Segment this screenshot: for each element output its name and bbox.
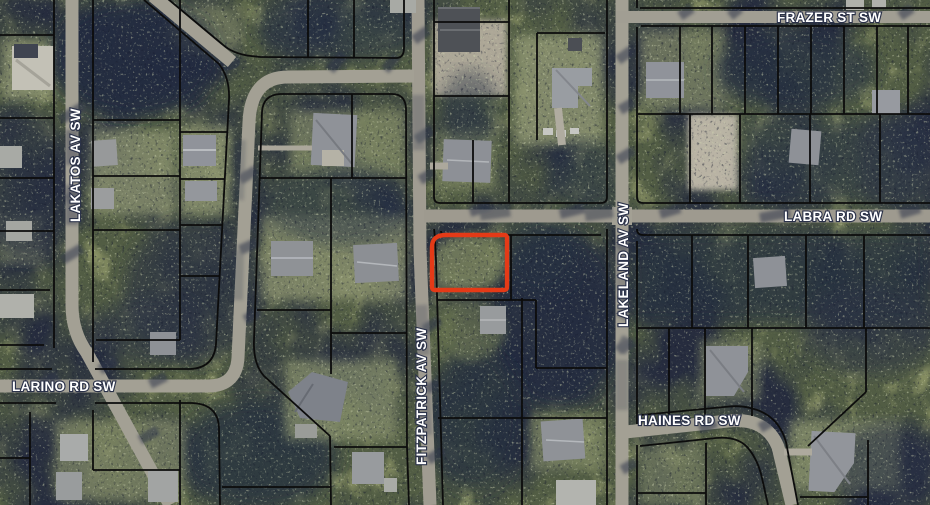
svg-text:LABRA RD SW: LABRA RD SW [784,209,882,224]
svg-text:HAINES RD SW: HAINES RD SW [638,413,741,428]
svg-text:FITZPATRICK AV SW: FITZPATRICK AV SW [414,328,429,465]
svg-text:LAKELAND AV SW: LAKELAND AV SW [616,203,631,327]
svg-text:LARINO RD SW: LARINO RD SW [12,379,116,394]
svg-text:LAKATOS AV SW: LAKATOS AV SW [68,108,83,222]
svg-text:FRAZER ST SW: FRAZER ST SW [777,10,881,25]
